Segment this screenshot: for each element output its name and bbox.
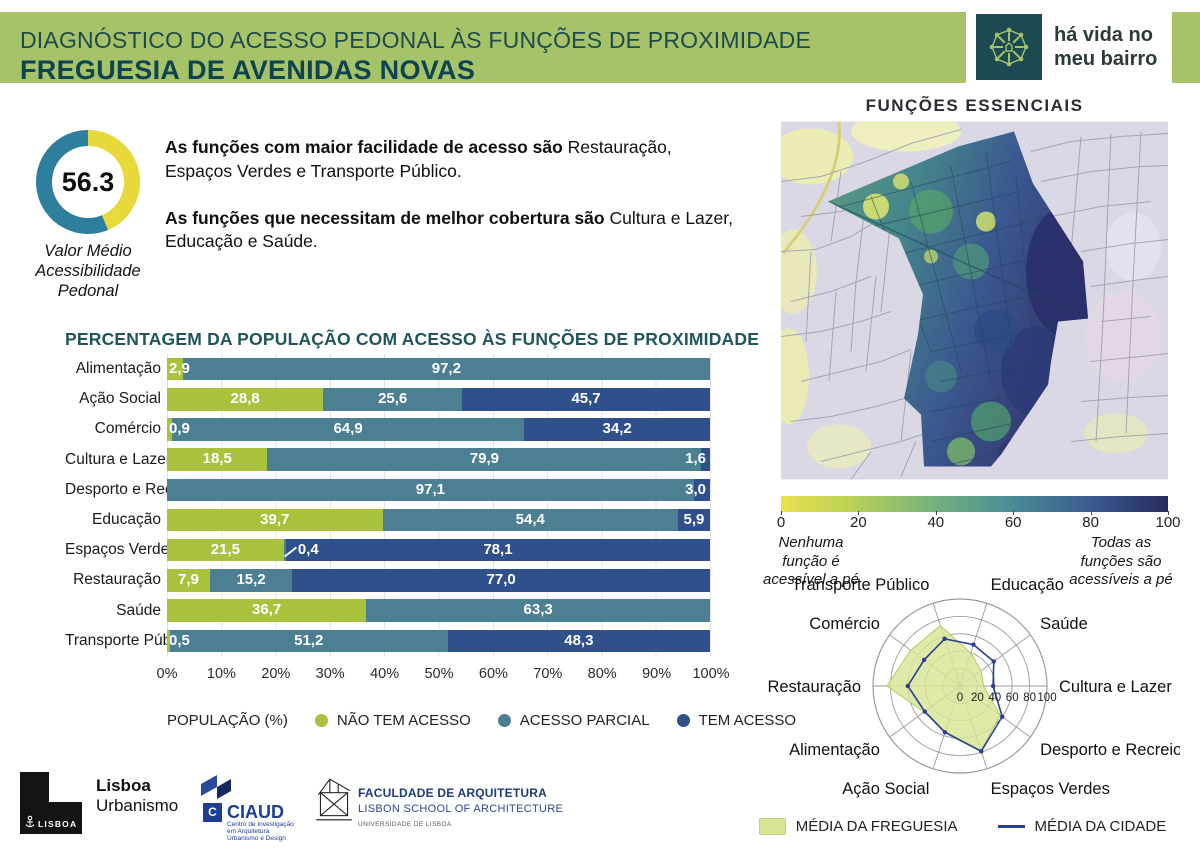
map-colorbar-ticks: 020406080100 [781, 514, 1168, 534]
brand-name: há vida no meu bairro [1054, 23, 1157, 72]
x-axis-tick: 30% [316, 666, 345, 682]
bar-value-label: 3,0 [685, 479, 706, 502]
radar-category-label: Alimentação [789, 741, 880, 759]
bar-segment-nao: 39,7 [167, 509, 383, 532]
bar-row: Espaços Verdes21,50,478,1 [65, 535, 715, 565]
x-axis-tick: 10% [207, 666, 236, 682]
bar-value-label: 34,2 [524, 418, 710, 441]
bar-segment-nao: 36,7 [167, 599, 366, 622]
bar-chart-x-axis: 0%10%20%30%40%50%60%70%80%90%100% [167, 666, 711, 686]
ciaud-c-mark: C [203, 803, 222, 822]
radar-category-label: Ação Social [842, 780, 929, 798]
bar-value-label: 79,9 [267, 448, 701, 471]
radar-category-label: Educação [991, 576, 1064, 594]
bar-category-label: Cultura e Lazer [65, 451, 167, 469]
bar-value-label: 28,8 [167, 388, 323, 411]
bar-chart-title: PERCENTAGEM DA POPULAÇÃO COM ACESSO ÀS F… [65, 329, 759, 350]
bar-legend-item: ACESSO PARCIAL [498, 712, 650, 729]
legend-label: NÃO TEM ACESSO [337, 712, 471, 729]
bar-row: Alimentação2,997,2 [65, 354, 715, 384]
faculdade-arquitetura-label: FACULDADE DE ARQUITETURA LISBON SCHOOL O… [358, 786, 563, 829]
ciaud-name: CIAUD [227, 802, 284, 823]
lisboa-municipality-logo: LISBOA [20, 772, 82, 834]
bar-value-label: 78,1 [286, 539, 710, 562]
bar-category-label: Saúde [65, 602, 167, 620]
bar-value-label: 64,9 [172, 418, 524, 441]
bar-chart-legend: POPULAÇÃO (%) NÃO TEM ACESSOACESSO PARCI… [167, 712, 796, 729]
radar-cidade-marker [1000, 714, 1004, 718]
legend-label: ACESSO PARCIAL [520, 712, 650, 729]
bar-row: Comércio0,964,934,2 [65, 414, 715, 444]
bar-track: 39,754,45,9 [167, 509, 710, 532]
bar-value-label: 1,6 [685, 448, 706, 471]
bar-segment-parcial: 51,2 [170, 630, 448, 653]
bar-row: Cultura e Lazer18,579,91,6 [65, 445, 715, 475]
bar-category-label: Ação Social [65, 390, 167, 408]
bar-category-label: Comércio [65, 420, 167, 438]
lisboa-urbanismo-label: Lisboa Urbanismo [96, 776, 178, 817]
colorbar-tick-label: 0 [777, 514, 785, 531]
bar-segment-tem: 78,1 [286, 539, 710, 562]
bar-value-label: 0,9 [169, 418, 190, 441]
freguesia-swatch-icon [759, 818, 786, 835]
x-axis-tick: 20% [261, 666, 290, 682]
bar-segment-nao: 7,9 [167, 569, 210, 592]
bar-category-label: Alimentação [65, 360, 167, 378]
bar-value-label: 48,3 [448, 630, 710, 653]
infographic-page: DIAGNÓSTICO DO ACESSO PEDONAL ÀS FUNÇÕES… [0, 0, 1200, 849]
bar-segment-tem: 48,3 [448, 630, 710, 653]
legend-dot-icon [677, 714, 690, 727]
x-axis-tick: 80% [588, 666, 617, 682]
rosette-icon [976, 14, 1042, 80]
bar-track: 36,763,3 [167, 599, 710, 622]
radar-cidade-marker [992, 659, 996, 663]
stacked-bar-chart: Alimentação2,997,2Ação Social28,825,645,… [65, 354, 715, 656]
bar-row: Ação Social28,825,645,7 [65, 384, 715, 414]
bar-track: 97,13,0 [167, 479, 710, 502]
bar-segment-nao: 28,8 [167, 388, 323, 411]
bar-segment-parcial: 25,6 [323, 388, 462, 411]
bar-category-label: Restauração [65, 571, 167, 589]
radar-r-tick-label: 40 [988, 692, 1001, 704]
x-axis-tick: 70% [533, 666, 562, 682]
page-subtitle: DIAGNÓSTICO DO ACESSO PEDONAL ÀS FUNÇÕES… [20, 27, 811, 54]
bar-value-label: 25,6 [323, 388, 462, 411]
radar-r-tick-label: 20 [971, 692, 984, 704]
radar-legend-cidade: MÉDIA DA CIDADE [998, 818, 1167, 835]
donut-value: 56.3 [36, 130, 140, 234]
radar-cidade-marker [991, 684, 995, 688]
bar-segment-parcial: 64,9 [172, 418, 524, 441]
svg-text:LISBOA: LISBOA [38, 819, 77, 829]
bar-segment-nao: 2,9 [167, 358, 183, 381]
bar-segment-nao: 18,5 [167, 448, 267, 471]
colorbar-tick-label: 100 [1155, 514, 1180, 531]
bar-value-label: 97,1 [167, 479, 694, 502]
bar-track: 0,551,248,3 [167, 630, 710, 653]
summary-paragraph-2: As funções que necessitam de melhor cobe… [165, 207, 740, 255]
ciaud-logo-icon [200, 772, 232, 802]
x-axis-tick: 60% [479, 666, 508, 682]
accessibility-map [781, 121, 1168, 480]
x-axis-tick: 0% [157, 666, 178, 682]
colorbar-tick-label: 80 [1082, 514, 1099, 531]
bar-value-label: 77,0 [292, 569, 710, 592]
bar-value-label: 97,2 [183, 358, 710, 381]
radar-category-label: Saúde [1040, 615, 1088, 633]
bar-row: Saúde36,763,3 [65, 596, 715, 626]
page-title: FREGUESIA DE AVENIDAS NOVAS [20, 55, 475, 86]
radar-r-tick-label: 100 [1037, 692, 1056, 704]
bar-category-label: Transporte Público [65, 632, 167, 650]
ciaud-description: Centro de Investigação em Arquitetura Ur… [227, 822, 294, 842]
cidade-line-icon [998, 825, 1025, 828]
bar-category-label: Desporto e Recreio [65, 481, 167, 499]
bar-track: 28,825,645,7 [167, 388, 710, 411]
summary-paragraph-1: As funções com maior facilidade de acess… [165, 136, 740, 184]
bar-value-label: 18,5 [167, 448, 267, 471]
bar-segment-nao: 21,5 [167, 539, 284, 562]
radar-cidade-marker [906, 684, 910, 688]
summary-text: As funções com maior facilidade de acess… [165, 136, 740, 277]
radar-category-label: Comércio [809, 615, 880, 633]
legend-dot-icon [315, 714, 328, 727]
bar-segment-tem: 77,0 [292, 569, 710, 592]
radar-cidade-marker [923, 709, 927, 713]
radar-cidade-marker [942, 637, 946, 641]
bar-segment-parcial: 15,2 [210, 569, 292, 592]
x-axis-tick: 50% [424, 666, 453, 682]
bar-segment-parcial: 97,2 [183, 358, 710, 381]
rosette-house [1006, 43, 1012, 51]
radar-category-label: Restauração [767, 678, 861, 696]
radar-cidade-marker [971, 642, 975, 646]
bar-value-label: 63,3 [366, 599, 710, 622]
bar-segment-nao: 0,5 [167, 630, 170, 653]
rosette-spoke [1013, 37, 1019, 43]
bar-value-label: 45,7 [462, 388, 710, 411]
radar-cidade-marker [922, 658, 926, 662]
radar-category-label: Transporte Público [792, 576, 930, 594]
radar-cidade-marker [979, 749, 983, 753]
x-axis-tick: 100% [692, 666, 729, 682]
colorbar-tick-label: 20 [850, 514, 867, 531]
bar-segment-parcial: 54,4 [383, 509, 678, 532]
colorbar-tick-label: 60 [1005, 514, 1022, 531]
bar-value-label: 15,2 [210, 569, 292, 592]
bar-segment-tem: 5,9 [678, 509, 710, 532]
bar-value-label: 36,7 [167, 599, 366, 622]
bar-track: 7,915,277,0 [167, 569, 710, 592]
radar-legend: MÉDIA DA FREGUESIA MÉDIA DA CIDADE [745, 818, 1180, 835]
bar-row: Transporte Público0,551,248,3 [65, 626, 715, 656]
radar-category-label: Cultura e Lazer [1059, 678, 1172, 696]
colorbar-tick-label: 40 [927, 514, 944, 531]
bar-segment-tem: 45,7 [462, 388, 710, 411]
rosette-spoke [999, 37, 1005, 43]
rosette-spoke [1013, 51, 1019, 57]
bar-value-label: 0,4 [298, 539, 319, 562]
radar-chart: 020406080100EducaçãoSaúdeCultura e Lazer… [745, 576, 1180, 811]
radar-r-tick-label: 80 [1023, 692, 1036, 704]
bar-row: Desporto e Recreio97,13,0 [65, 475, 715, 505]
x-axis-tick: 40% [370, 666, 399, 682]
bar-category-label: Espaços Verdes [65, 541, 167, 559]
bar-value-label: 7,9 [167, 569, 210, 592]
brand-box: há vida no meu bairro [966, 0, 1172, 95]
bar-track: 21,50,478,1 [167, 539, 710, 562]
radar-category-label: Espaços Verdes [991, 780, 1110, 798]
legend-dot-icon [498, 714, 511, 727]
rosette-spoke [999, 51, 1005, 57]
bar-segment-parcial: 79,9 [267, 448, 701, 471]
bar-legend-item: NÃO TEM ACESSO [315, 712, 471, 729]
radar-legend-freguesia: MÉDIA DA FREGUESIA [759, 818, 958, 835]
bar-value-label: 51,2 [170, 630, 448, 653]
bar-value-label: 21,5 [167, 539, 284, 562]
faculdade-arquitetura-logo-icon [315, 776, 353, 824]
bar-value-label: 5,9 [678, 509, 710, 532]
bar-segment-nao: 0,9 [167, 418, 172, 441]
bar-segment-tem: 34,2 [524, 418, 710, 441]
bar-row: Educação39,754,45,9 [65, 505, 715, 535]
bar-legend-title: POPULAÇÃO (%) [167, 712, 288, 729]
bar-track: 2,997,2 [167, 358, 710, 381]
radar-category-label: Desporto e Recreio [1040, 741, 1180, 759]
bar-row: Restauração7,915,277,0 [65, 565, 715, 595]
bar-track: 18,579,91,6 [167, 448, 710, 471]
bar-segment-parcial: 97,1 [167, 479, 694, 502]
bar-value-label: 0,5 [169, 630, 190, 653]
map-title: FUNÇÕES ESSENCIAIS [781, 96, 1168, 116]
donut-chart: 56.3 [36, 130, 140, 234]
radar-cidade-marker [943, 730, 947, 734]
bar-value-label: 39,7 [167, 509, 383, 532]
bar-segment-parcial: 63,3 [366, 599, 710, 622]
bar-category-label: Educação [65, 511, 167, 529]
map-colorbar [781, 496, 1168, 512]
x-axis-tick: 90% [642, 666, 671, 682]
donut-caption: Valor Médio Acessibilidade Pedonal [16, 241, 160, 301]
bar-value-label: 2,9 [169, 358, 190, 381]
radar-r-tick-label: 0 [957, 692, 963, 704]
bar-track: 0,964,934,2 [167, 418, 710, 441]
bar-value-label: 54,4 [383, 509, 678, 532]
radar-r-tick-label: 60 [1006, 692, 1019, 704]
